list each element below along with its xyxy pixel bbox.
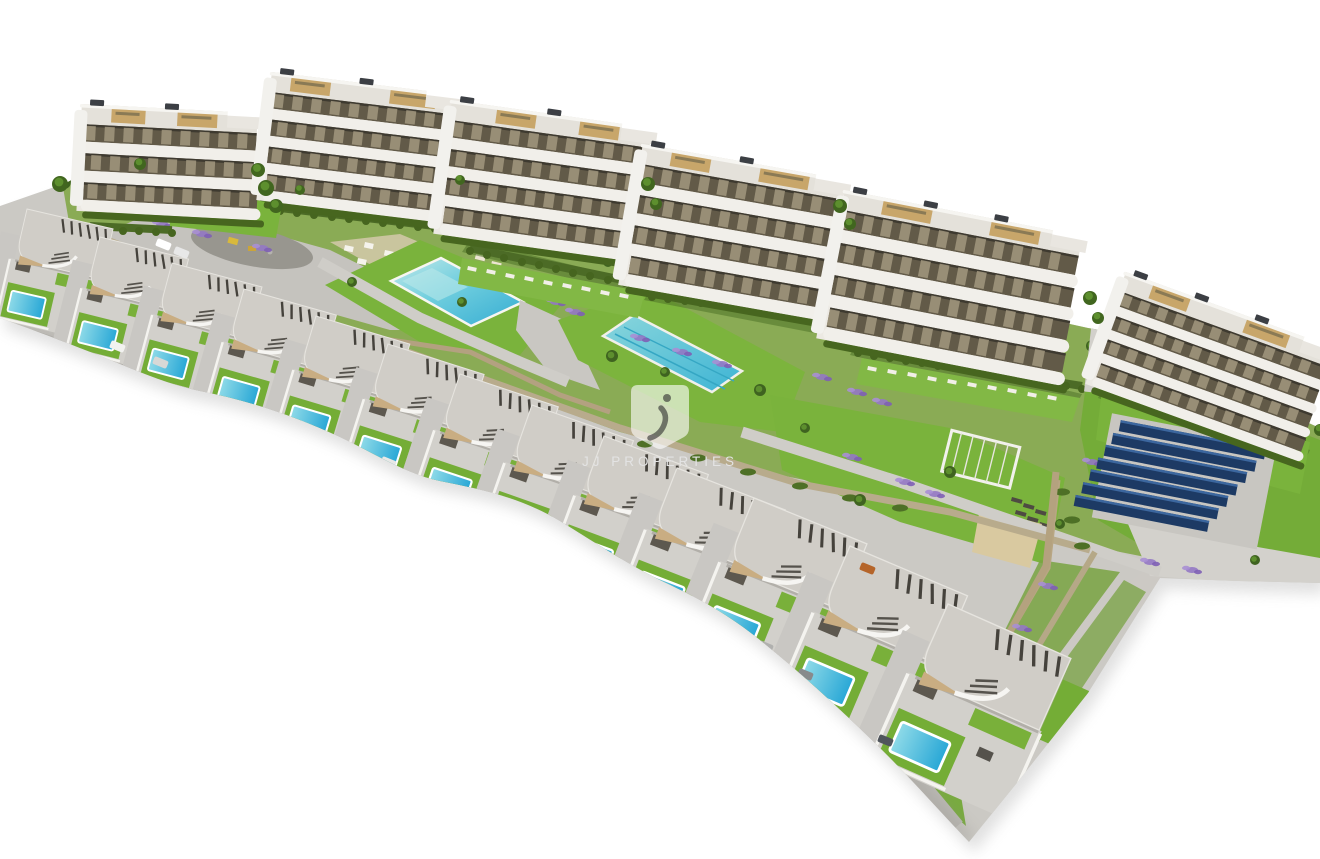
svg-text:JJ PROPERTIES: JJ PROPERTIES bbox=[582, 454, 738, 469]
